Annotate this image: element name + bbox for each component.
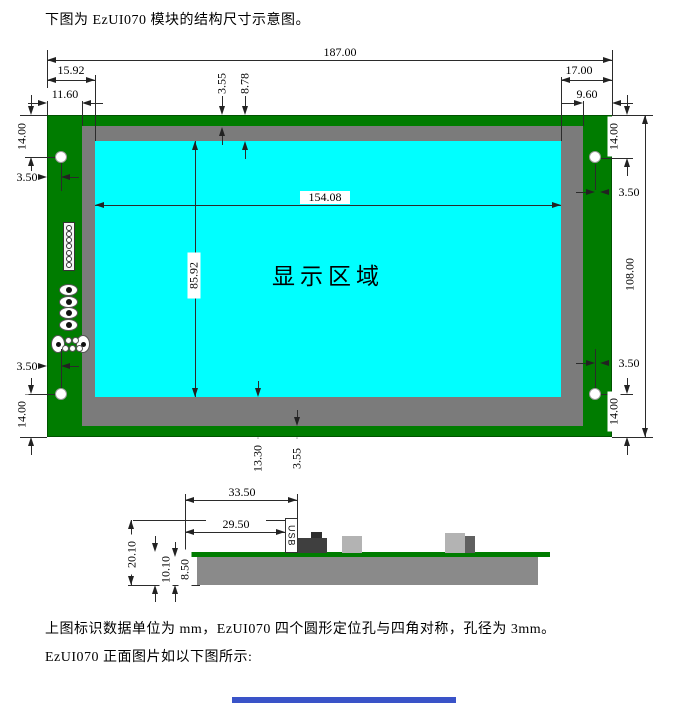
dim-line [245, 96, 246, 106]
dim-hole-offset-h: 3.50 [614, 357, 644, 370]
dim-arrow [624, 158, 630, 167]
dim-line [627, 378, 628, 385]
dim-arrow [172, 548, 178, 557]
dim-arrow [600, 189, 609, 195]
next-figure-edge [232, 697, 456, 703]
dim-arrow [185, 529, 194, 535]
dim-line [245, 150, 246, 159]
dim-line [297, 410, 298, 417]
display-area-label: 显示区域 [95, 257, 561, 291]
mounting-hole-top-right [589, 151, 601, 163]
dim-arrow [603, 77, 612, 83]
dim-arrow [172, 585, 178, 594]
dim-line [595, 164, 596, 190]
solder-pad [59, 284, 78, 296]
mounting-hole-top-left [55, 151, 67, 163]
document-page: 下图为 EzUI070 模块的结构尺寸示意图。 显示区域 187.00 15.9… [0, 0, 688, 703]
component-light [445, 533, 465, 553]
extension-line [25, 394, 55, 395]
dim-arrow [152, 585, 158, 594]
dim-arrow [28, 385, 34, 394]
dim-arrow [61, 174, 70, 180]
dim-arrow [185, 497, 194, 503]
dim-line [595, 349, 596, 388]
dim-arrow [586, 360, 595, 366]
dim-line [47, 60, 612, 61]
dim-hole-offset-v: 14.00 [16, 117, 29, 157]
dim-arrow [219, 106, 225, 115]
dim-total-height: 108.00 [624, 252, 637, 298]
dim-bottom-edge-strip: 3.55 [291, 439, 304, 479]
dim-arrow [61, 363, 70, 369]
dim-hole-offset-v: 14.00 [608, 117, 621, 157]
dim-display-width: 154.08 [300, 191, 350, 204]
dim-arrow [276, 529, 285, 535]
dim-arrow [294, 417, 300, 426]
mounting-hole-bottom-right [589, 388, 601, 400]
dim-usb-overhang: 33.50 [212, 486, 272, 499]
dim-arrow [574, 100, 583, 106]
dim-line [627, 167, 628, 176]
dim-line [222, 136, 223, 145]
dim-line [155, 594, 156, 602]
dim-hole-offset-h: 3.50 [614, 186, 644, 199]
dim-arrow [288, 497, 297, 503]
dim-line [31, 446, 32, 455]
component-light [342, 536, 362, 553]
dim-line [175, 594, 176, 602]
dim-line [95, 205, 561, 206]
dim-arrow [624, 437, 630, 446]
dim-line [576, 363, 586, 364]
dim-line [155, 536, 156, 543]
dim-line [28, 103, 38, 104]
dim-arrow [47, 77, 56, 83]
dim-display-thickness: 8.50 [179, 550, 192, 590]
dim-line [185, 500, 297, 501]
dim-hole-offset-v: 14.00 [16, 395, 29, 435]
dim-arrow [255, 388, 261, 397]
dim-arrow [28, 157, 34, 166]
dim-arrow [624, 385, 630, 394]
dim-total-width: 187.00 [314, 46, 366, 59]
dim-total-thickness: 20.10 [126, 535, 139, 575]
dim-usb-body: 29.50 [206, 518, 266, 531]
dim-arrow [642, 115, 648, 124]
extension-line [297, 494, 298, 519]
pin-header [63, 222, 75, 271]
component-dark [465, 536, 475, 553]
dim-line [627, 446, 628, 455]
dim-line [645, 115, 646, 437]
via-hole [65, 337, 72, 344]
next-figure-caption: EzUI070 正面图片如以下图所示: [45, 646, 252, 666]
dim-arrow [47, 57, 56, 63]
dim-arrow [612, 100, 621, 106]
extension-line [95, 75, 96, 141]
dim-line [562, 103, 574, 104]
dim-arrow [242, 106, 248, 115]
dim-arrow [624, 106, 630, 115]
dim-arrow [38, 363, 47, 369]
dim-hole-offset-v: 14.00 [608, 392, 621, 432]
dim-display-height: 85.92 [188, 253, 201, 299]
extension-line [561, 75, 562, 141]
dim-arrow [38, 174, 47, 180]
via-hole [76, 345, 83, 352]
extension-line [612, 437, 653, 438]
dim-line [627, 95, 628, 106]
mounting-hole-bottom-left [55, 388, 67, 400]
dim-arrow [219, 127, 225, 136]
usb-connector-label: USB [287, 525, 297, 547]
dim-arrow [95, 202, 104, 208]
dim-arrow [600, 360, 609, 366]
dim-arrow [586, 189, 595, 195]
dim-line [70, 366, 79, 367]
dim-arrow [603, 57, 612, 63]
dim-arrow [152, 543, 158, 552]
via-hole [69, 345, 76, 352]
dim-arrow [642, 428, 648, 437]
dim-line [576, 192, 586, 193]
dim-arrow [242, 141, 248, 150]
dim-arrow [82, 100, 91, 106]
dim-arrow [128, 576, 134, 585]
intro-text: 下图为 EzUI070 模块的结构尺寸示意图。 [45, 9, 310, 29]
dim-arrow [28, 106, 34, 115]
dim-line [185, 532, 285, 533]
dim-arrow [192, 388, 198, 397]
dim-arrow [552, 202, 561, 208]
dim-arrow [28, 437, 34, 446]
dim-line [70, 177, 79, 178]
dim-line [222, 96, 223, 106]
solder-pad [59, 307, 78, 319]
dim-arrow [561, 77, 570, 83]
component-dark [298, 538, 327, 553]
dim-board-to-bottom: 10.10 [160, 550, 173, 590]
dim-line [31, 378, 32, 385]
dim-arrow [192, 141, 198, 150]
via-hole [62, 345, 69, 352]
dim-line [258, 381, 259, 388]
dim-arrow [38, 100, 47, 106]
display-body-side [197, 557, 538, 585]
dim-arrow [86, 77, 95, 83]
via-hole [72, 337, 79, 344]
dim-right-bezel: 9.60 [566, 88, 608, 101]
solder-pad [59, 319, 78, 331]
dim-line [31, 95, 32, 106]
dim-line [91, 103, 103, 104]
dim-right-margin: 17.00 [556, 64, 602, 77]
dim-bottom-to-display: 13.30 [252, 439, 265, 479]
dim-left-margin: 15.92 [48, 64, 94, 77]
units-note-text: 上图标识数据单位为 mm，EzUI070 四个圆形定位孔与四角对称，孔径为 3m… [45, 618, 556, 638]
dim-arrow [128, 520, 134, 529]
dim-line [61, 349, 62, 388]
component-dark-nub [311, 532, 322, 538]
dim-line [61, 163, 62, 191]
usb-connector: USB [285, 518, 298, 553]
